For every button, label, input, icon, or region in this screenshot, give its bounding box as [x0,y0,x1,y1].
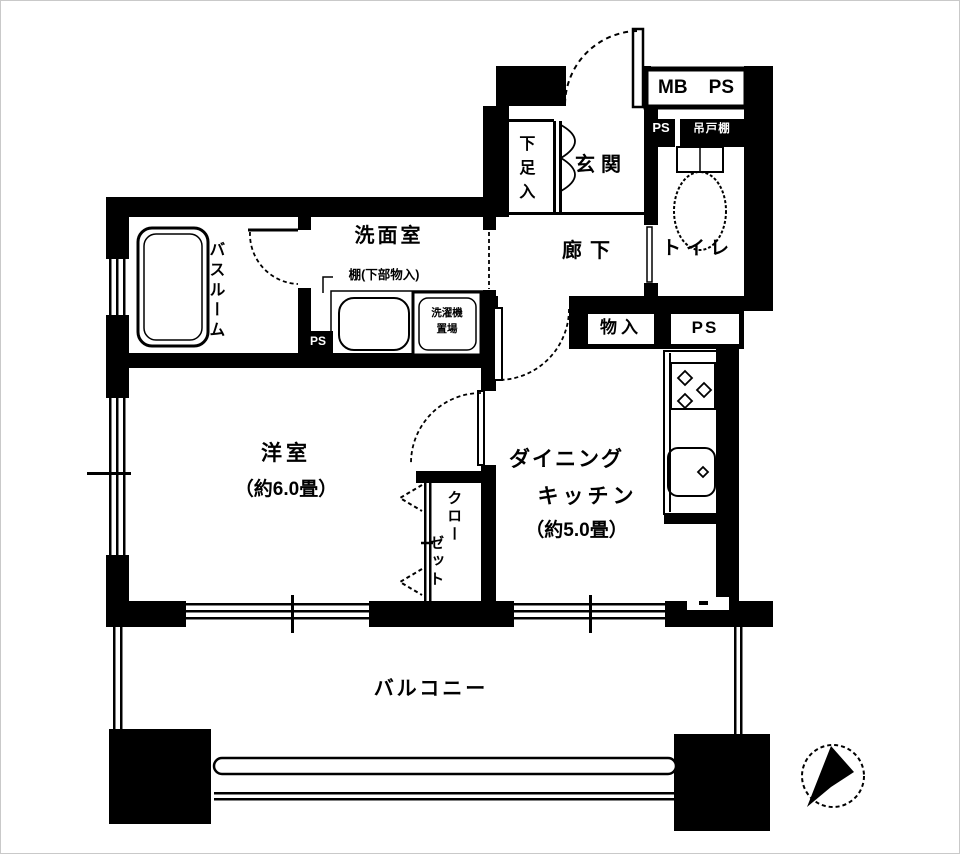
dk-door-swing [498,309,569,380]
closet-folding-door-marks [400,485,422,595]
balcony-railing [214,758,676,774]
compass [802,745,864,807]
storage-label: 物入 [588,318,654,338]
bedroom-door-leaf [478,391,484,465]
toilet-label: トイレ [654,238,742,260]
ps-washroom-label: PS [303,335,333,349]
balcony-pillar-right [674,734,770,831]
entrance-door-swing [565,31,637,105]
window-tick [291,595,294,633]
dk-size-label: （約5.0畳） [494,520,659,542]
bathtub-inner [144,234,202,340]
closet-label-col2: ゼット [427,522,444,602]
laundry-line2: 置場 [416,323,478,335]
washroom-label: 洗面室 [335,225,443,248]
closet-label-col1: クロー [445,482,462,552]
western-room-label: 洋室 [211,442,361,466]
shoe-cabinet-label: 下足入 [515,128,533,214]
dk-label-line2: キッチン [515,485,660,509]
entrance-label: 玄関 [557,154,645,177]
mb-label: MB [658,77,688,99]
washroom-note-label: 棚(下部物入) [323,268,445,282]
right-outer-wall-lower [716,349,739,611]
meter-box-label: MB PS [646,71,746,105]
balcony-pillar-left [109,729,211,824]
bathroom-label: バスルーム [205,230,223,352]
balcony-label: バルコニー [356,678,506,701]
bathroom-door-swing [250,232,298,284]
dk-door-leaf [494,308,502,380]
entrance-door-leaf [633,29,643,107]
floorplan-drawing [1,1,959,853]
laundry-line1: 洗濯機 [416,307,478,319]
ps-meter-label: PS [709,77,734,99]
hallway-label: 廊下 [547,240,633,263]
bedroom-door-swing [411,393,481,463]
ps-kitchen-label: PS [671,318,739,338]
ps-shaft-top-label: PS [646,121,676,136]
toilet-door-leaf [647,227,652,282]
window-tick [589,595,592,633]
dk-label-line1: ダイニング [494,448,639,472]
window-tick [87,472,131,475]
hanging-cupboard-label: 吊戸棚 [680,123,744,136]
floorplan-canvas: MB PS PS 吊戸棚 下足入 玄関 トイレ 廊下 洗面室 棚(下部物入) 洗… [0,0,960,854]
wash-basin [339,298,409,350]
vent-mark [699,601,708,605]
western-room-size-label: （約6.0畳） [201,479,371,501]
laundry-label: 洗濯機 置場 [416,307,478,335]
